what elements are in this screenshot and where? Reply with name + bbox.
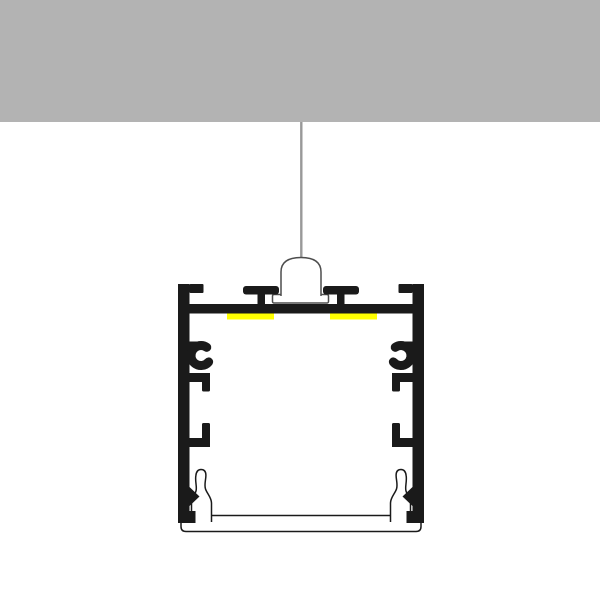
- retainer-hook-upper-left: [190, 373, 211, 392]
- suspension-mount: [273, 258, 329, 304]
- hook-stub: [392, 373, 400, 392]
- ceiling-slab: [0, 0, 600, 122]
- t-post-stem-right: [337, 292, 345, 306]
- led-strip-left: [227, 314, 274, 320]
- aluminum-profile: [178, 284, 424, 523]
- c-clip-arm-right: [403, 342, 413, 351]
- profile-side-wall-left: [178, 284, 190, 514]
- hook-stub: [392, 423, 400, 447]
- corner-block-right: [407, 511, 425, 523]
- c-clip-arm-left: [189, 342, 199, 351]
- profile-side-wall-right: [413, 284, 425, 514]
- diffuser-shelf: [210, 516, 392, 523]
- retainer-hook-upper-right: [392, 373, 413, 392]
- diffuser-plate: [181, 521, 421, 532]
- corner-block-left: [178, 511, 196, 523]
- diagram-canvas: [0, 0, 600, 600]
- profile-corner-flange-right: [399, 284, 413, 293]
- t-post-stem-left: [258, 292, 266, 306]
- hook-stub: [202, 373, 210, 392]
- hook-stub: [202, 423, 210, 447]
- c-clip-left: [189, 342, 209, 366]
- profile-top-wall: [178, 304, 424, 314]
- retainer-hook-lower-left: [190, 423, 211, 447]
- suspension-mount-bell: [281, 258, 321, 297]
- retainer-hook-lower-right: [392, 423, 413, 447]
- profile-corner-flange-left: [190, 284, 204, 293]
- led-strip-right: [330, 314, 377, 320]
- c-clip-right: [393, 342, 413, 366]
- diffuser: [181, 470, 421, 532]
- profile-cross-section-drawing: [0, 0, 600, 600]
